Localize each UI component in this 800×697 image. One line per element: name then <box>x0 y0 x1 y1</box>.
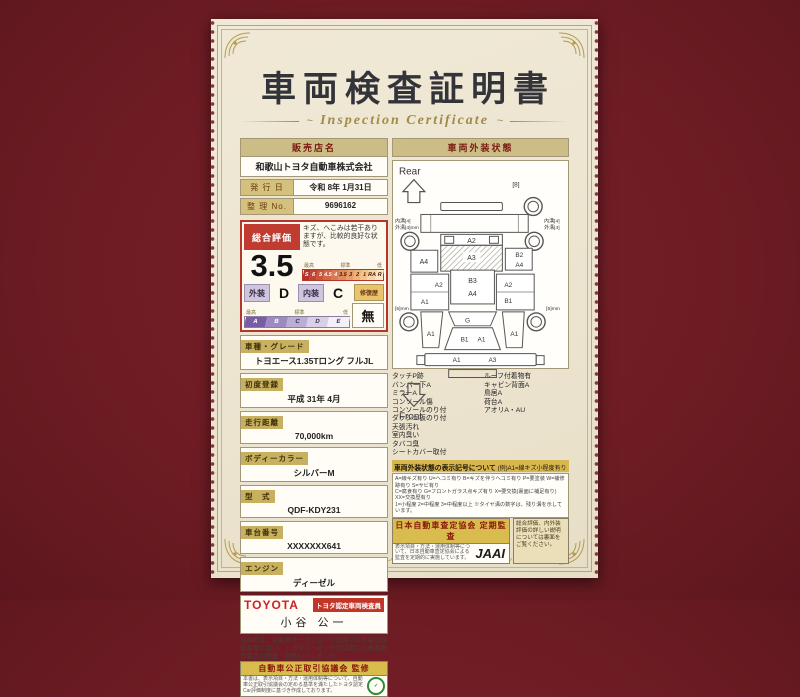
issue-date-label: 発 行 日 <box>241 180 294 195</box>
page-title: 車両検査証明書 <box>211 61 598 112</box>
letter-scale: 最高 標準 低 A B C D E <box>244 309 350 328</box>
dealer-label: 販売店名 <box>241 139 387 157</box>
certificate-sheet: 車両検査証明書 ~ Inspection Certificate ~ 販売店名 … <box>211 19 598 578</box>
exterior-label: 外装 <box>244 284 270 302</box>
note-item: タバコ臭 <box>392 441 484 449</box>
issue-date-row: 発 行 日 令和 8年 1月31日 <box>240 179 388 196</box>
letter-scale-cells: A B C D E <box>244 316 350 328</box>
field-value: QDF-KDY231 <box>241 504 387 517</box>
scale-cell: B <box>265 317 288 327</box>
scale-low-label: 低 <box>343 309 348 316</box>
panel-mark: A3 <box>488 357 496 364</box>
repair-history-label: 修復歴 <box>354 284 384 301</box>
field-engine: エンジン ディーゼル <box>240 557 388 592</box>
scale-mid-label: 標準 <box>294 309 304 316</box>
field-model-code: 型 式 QDF-KDY231 <box>240 485 388 518</box>
field-label: ボディーカラー <box>241 452 308 465</box>
front-direction-label: Front <box>399 411 422 422</box>
corner-flourish-icon <box>557 30 587 60</box>
field-value: 平成 31年 4月 <box>241 392 387 407</box>
interior-grade: C <box>324 284 352 302</box>
certified-inspector-badge: トヨタ認定車両検査員 <box>313 598 384 612</box>
tire-note: [8] <box>512 182 519 189</box>
field-first-registration: 初度登録 平成 31年 4月 <box>240 373 388 408</box>
panel-mark: A2 <box>435 282 443 289</box>
front-arrow-icon <box>403 383 425 406</box>
dealer-name: 和歌山トヨタ自動車株式会社 <box>241 157 387 176</box>
scale-low-label: 低 <box>377 262 382 269</box>
jaai-text: 表示項目・方法・運用体制等について、日本自動車査定協会による監査を定期的に実施し… <box>395 545 473 562</box>
exterior-condition-header: 車両外装状態 <box>392 138 569 157</box>
scale-high-label: 最高 <box>246 309 256 316</box>
toyota-logo: TOYOTA <box>244 598 299 612</box>
legend-example: (例)A1=線キズ小程度有り <box>498 466 567 472</box>
tire-note: [5]mm <box>546 306 560 312</box>
truck-top-view-diagram: Rear [8] 内溝[4] 外溝[4]mm 内溝[4] 外溝[4] <box>395 162 566 426</box>
numeric-scale-cells: S 6 5 4.5 4 3.5 3 2 1 RA R <box>302 269 384 281</box>
scale-mid-label: 標準 <box>340 262 350 269</box>
panel-mark: A4 <box>515 262 523 269</box>
fair-trade-text: 本書は、表示項目・方法・運用体制等について、自動車公正取引協議会の定める基準を満… <box>243 677 365 694</box>
eco-seal-icon: ✓ <box>367 677 385 695</box>
tire-note: [5]mm <box>395 306 409 312</box>
note-item: 室内臭い <box>392 432 484 440</box>
jaai-header: 日本自動車査定協会 定期監査 <box>393 519 509 544</box>
ref-no-row: 整 理 No. 9696162 <box>240 198 388 215</box>
scale-cell: E <box>327 317 350 327</box>
field-label: エンジン <box>241 562 283 575</box>
ref-no-value: 9696162 <box>294 199 387 214</box>
panel-mark: B1 <box>504 298 512 305</box>
panel-mark: B1 <box>461 337 469 344</box>
dealer-box: 販売店名 和歌山トヨタ自動車株式会社 <box>240 138 388 177</box>
panel-mark: A4 <box>420 259 429 266</box>
field-value: XXXXXXX641 <box>241 540 387 553</box>
scale-cell: C <box>286 317 309 327</box>
panel-mark: A1 <box>421 299 429 306</box>
corner-flourish-icon <box>222 30 252 60</box>
divider <box>510 121 568 122</box>
left-column: 販売店名 和歌山トヨタ自動車株式会社 発 行 日 令和 8年 1月31日 整 理… <box>240 138 388 564</box>
rating-comment: キズ、へこみは若干ありますが、比較的良好な状態です。 <box>302 224 384 250</box>
panel-mark: A4 <box>468 291 477 298</box>
legend-title: 車両外装状態の表示記号について <box>394 465 496 472</box>
note-item: シートカバー取付 <box>392 449 484 457</box>
panel-mark: A1 <box>478 337 486 344</box>
field-label: 車台番号 <box>241 526 283 539</box>
panel-mark: A2 <box>504 282 512 289</box>
flourish-icon: ~ <box>497 115 502 127</box>
see-back-note: 総合評価、内外装評価の詳しい説明については裏面をご覧ください。 <box>513 518 569 564</box>
inspector-name: 小谷 公一 <box>244 612 384 631</box>
disclaimer-text: 当車両は、自動車オークションで適用される車両評価基準に沿い、トヨタユーゼックが認… <box>240 637 388 661</box>
tire-note: 内溝[4] <box>395 217 411 224</box>
panel-mark: A2 <box>467 238 476 245</box>
field-chassis-no: 車台番号 XXXXXXX641 <box>240 521 388 554</box>
field-value: トヨエース1.35Tロング フルJL <box>241 354 387 369</box>
panel-mark: A1 <box>427 331 435 338</box>
issue-date-value: 令和 8年 1月31日 <box>294 180 387 195</box>
field-label: 車種・グレード <box>241 340 309 353</box>
flourish-icon: ~ <box>307 115 312 127</box>
panel-mark: A1 <box>453 357 461 364</box>
rear-direction-label: Rear <box>399 167 421 178</box>
vehicle-diagram: Rear [8] 内溝[4] 外溝[4]mm 内溝[4] 外溝[4] <box>392 160 569 369</box>
panel-mark: A3 <box>467 255 476 262</box>
legend-line: A=線キズ有り U=ヘコミ有り B=キズを伴うヘコミ有り P=要塗装 W=補修跡… <box>395 476 566 489</box>
overall-rating-value: 3.5 <box>244 251 300 281</box>
field-value: ディーゼル <box>241 576 387 591</box>
rating-box: 総合評価 キズ、へこみは若干ありますが、比較的良好な状態です。 3.5 最高 標… <box>240 220 388 332</box>
repair-history-value: 無 <box>352 303 384 328</box>
fair-trade-header: 自動車公正取引協議会 監修 <box>241 662 387 676</box>
field-model-grade: 車種・グレード トヨエース1.35Tロング フルJL <box>240 335 388 370</box>
overall-rating-label: 総合評価 <box>244 224 300 250</box>
field-label: 初度登録 <box>241 378 283 391</box>
panel-mark: G <box>465 317 470 324</box>
field-value: 70,000km <box>241 430 387 443</box>
scale-cell: R <box>375 270 384 280</box>
interior-label: 内装 <box>298 284 324 302</box>
field-label: 走行距離 <box>241 416 283 429</box>
rear-arrow-icon <box>403 180 425 203</box>
panel-mark: B2 <box>515 252 523 259</box>
jaai-audit-box: 日本自動車査定協会 定期監査 表示項目・方法・運用体制等について、日本自動車査定… <box>392 518 510 564</box>
jaai-logo: JAAI <box>475 546 507 561</box>
inspector-box: TOYOTA トヨタ認定車両検査員 小谷 公一 <box>240 595 388 634</box>
exterior-grade: D <box>270 284 298 302</box>
legend-title-bar: 車両外装状態の表示記号について (例)A1=線キズ小程度有り <box>392 460 569 472</box>
subtitle-row: ~ Inspection Certificate ~ <box>211 113 598 129</box>
scale-cell: D <box>306 317 329 327</box>
tire-note: 外溝[4] <box>544 224 560 231</box>
panel-mark: B3 <box>468 278 477 285</box>
legend-text-box: A=線キズ有り U=ヘコミ有り B=キズを伴うヘコミ有り P=要塗装 W=補修跡… <box>392 473 569 517</box>
scale-cell: A <box>244 317 267 327</box>
divider <box>241 121 299 122</box>
field-value: シルバーM <box>241 466 387 481</box>
field-label: 型 式 <box>241 490 275 503</box>
fair-trade-box: 自動車公正取引協議会 監修 本書は、表示項目・方法・運用体制等について、自動車公… <box>240 661 388 697</box>
tire-note: 内溝[4] <box>544 217 560 224</box>
scale-high-label: 最高 <box>304 262 314 269</box>
page-subtitle: Inspection Certificate <box>320 113 489 129</box>
field-mileage: 走行距離 70,000km <box>240 411 388 444</box>
right-column: 車両外装状態 Rear [8] <box>392 138 569 564</box>
legend-line: 1=小程度 2=中程度 3=中程度以上 ※タイヤ溝の数字は、残り溝を示しています… <box>395 502 566 515</box>
field-body-color: ボディーカラー シルバーM <box>240 447 388 482</box>
panel-mark: A1 <box>510 331 518 338</box>
numeric-scale: 最高 標準 低 S 6 5 4.5 4 3.5 3 2 1 RA <box>302 262 384 281</box>
ref-no-label: 整 理 No. <box>241 199 294 214</box>
tire-note: 外溝[4]mm <box>395 224 419 231</box>
legend-line: C=腐食有り G=フロントガラス点キズ有り X=要交換(裏面に補足有り) XX=… <box>395 489 566 502</box>
